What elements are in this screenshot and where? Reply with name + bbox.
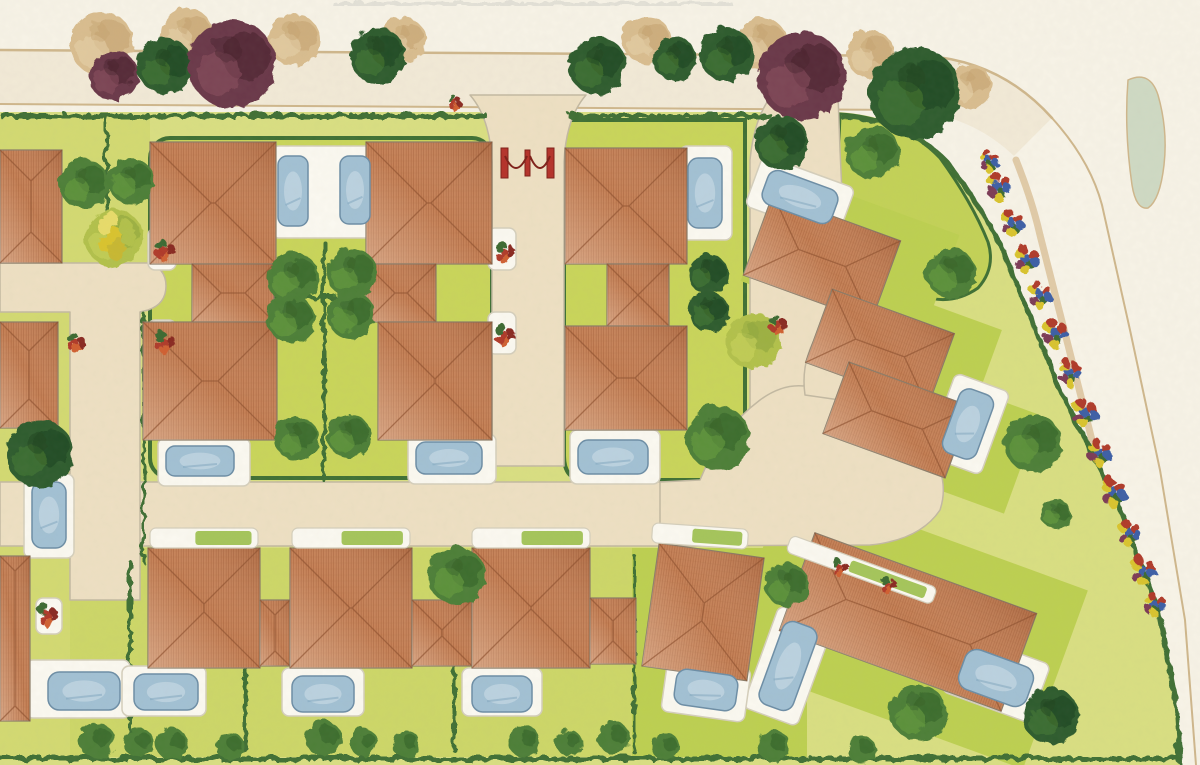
tree-texture [635, 22, 649, 36]
flower [1136, 575, 1146, 585]
flower [166, 247, 174, 255]
shrub [304, 719, 340, 755]
tree-texture [339, 297, 353, 311]
gate-post [501, 148, 508, 178]
shrub [348, 727, 376, 755]
flower [1044, 315, 1054, 325]
shrub [77, 721, 113, 757]
house-edge-2 [0, 322, 58, 428]
flower [100, 209, 115, 224]
tree-dark [1021, 686, 1077, 742]
shrub-shadow [91, 726, 109, 744]
flower [499, 338, 507, 346]
shrub-shadow [225, 734, 239, 748]
tree-texture [279, 301, 293, 315]
flower [988, 169, 998, 179]
shrub-shadow [359, 731, 373, 745]
house-ne-2 [565, 326, 687, 430]
tree-texture [24, 430, 44, 450]
flower [156, 237, 164, 245]
tree-texture [338, 420, 351, 433]
house-sw-2 [378, 322, 492, 440]
flower [1063, 376, 1072, 385]
house-edge-1 [0, 150, 62, 263]
tree-texture [699, 297, 711, 309]
shrub-shadow [564, 732, 577, 745]
tree-texture [281, 259, 297, 275]
tree-texture [782, 45, 808, 71]
flower [881, 574, 887, 580]
tree-mid [325, 246, 375, 296]
flower [1090, 436, 1099, 445]
flower [1156, 601, 1164, 609]
tree-texture [212, 33, 238, 59]
flower [1060, 356, 1069, 365]
tree-dark [686, 252, 726, 292]
tree-mid [1002, 412, 1060, 470]
shrub-shadow [519, 728, 535, 744]
flower [159, 253, 167, 261]
flower [506, 249, 514, 257]
tree-texture [1048, 502, 1057, 511]
flower [1002, 206, 1011, 215]
shrub [122, 726, 152, 756]
tree-mid [924, 246, 974, 296]
shrub [390, 728, 418, 756]
flower [1048, 337, 1058, 347]
flower [76, 339, 83, 346]
flower [1132, 553, 1142, 563]
tree-texture [740, 321, 757, 338]
tree-texture [959, 70, 972, 83]
flower [450, 104, 455, 109]
tree-maroon [87, 49, 137, 99]
tree-texture [750, 25, 766, 41]
flower [43, 619, 51, 627]
flower [1107, 497, 1117, 507]
tree-dark [4, 418, 72, 486]
tree-dark [687, 290, 727, 330]
shrub [846, 734, 874, 762]
site-plan: Residential development masterplan illus… [0, 0, 1200, 765]
flower [1130, 528, 1139, 537]
tree-mid [426, 545, 484, 603]
tree-dark [567, 35, 625, 93]
tree-texture [906, 693, 923, 710]
tree-texture [282, 21, 298, 37]
flower [68, 330, 75, 337]
shrub [649, 730, 677, 758]
swimming-pool [688, 158, 722, 228]
flower [1148, 608, 1156, 616]
tree-texture [584, 45, 601, 62]
tree-tan [266, 12, 318, 64]
flower [119, 229, 134, 244]
flower [156, 329, 164, 337]
gate-post [525, 150, 530, 176]
shrub-shadow [167, 731, 183, 747]
flower [1119, 516, 1128, 525]
swimming-pool [278, 156, 308, 226]
shrub [506, 723, 538, 755]
driveway-entry [292, 528, 410, 548]
gate-post [547, 148, 554, 178]
flower [1013, 218, 1022, 227]
flower [1019, 263, 1029, 273]
tree-mid [265, 293, 313, 341]
site-plan-canvas [0, 0, 1200, 765]
flower [448, 92, 453, 97]
house-south-east [642, 543, 764, 681]
tree-mid [325, 412, 369, 456]
flower [499, 255, 507, 263]
flower [1071, 368, 1080, 377]
tree-mid [889, 683, 945, 739]
flower [1087, 408, 1097, 418]
tree-texture [1019, 422, 1036, 439]
tree-texture [769, 123, 785, 139]
swimming-pool [472, 676, 532, 712]
flower [841, 565, 847, 571]
flower [496, 322, 504, 330]
tree-texture [714, 35, 730, 51]
tree-texture [175, 15, 191, 31]
shrub-shadow [134, 731, 149, 746]
flower [883, 587, 889, 593]
tree-mid [57, 157, 107, 207]
flower [1145, 566, 1155, 576]
shrub-shadow [401, 732, 415, 746]
flower [1030, 278, 1039, 287]
flower [1015, 241, 1025, 251]
swimming-pool [166, 446, 234, 476]
tree-dark [135, 36, 191, 92]
flower [1001, 182, 1011, 192]
flower [506, 332, 514, 340]
flower [1103, 475, 1113, 485]
shrub-shadow [609, 725, 625, 741]
tree-mid [1039, 497, 1069, 527]
swimming-pool [673, 668, 739, 712]
tree-dark [867, 45, 959, 137]
tree-mid [763, 561, 807, 605]
shrub-shadow [318, 724, 336, 742]
flower [833, 557, 839, 563]
tree-texture [72, 166, 87, 181]
flower [496, 239, 504, 247]
flower [105, 242, 120, 257]
flower [1057, 328, 1067, 338]
flower [770, 312, 777, 319]
flower [835, 570, 841, 576]
tree-texture [340, 255, 355, 270]
tree-texture [860, 133, 876, 149]
tree-dark [698, 26, 752, 80]
shrub [756, 728, 788, 760]
tree-maroon [186, 18, 274, 106]
tree-texture [776, 569, 789, 582]
swimming-pool [48, 672, 120, 710]
tree-texture [102, 58, 117, 73]
tree-mid [273, 415, 317, 459]
tree-texture [152, 46, 169, 63]
house-edge-3 [0, 556, 30, 721]
entry-lawn-strip [522, 531, 583, 545]
swimming-pool [32, 482, 66, 548]
flower [1041, 290, 1050, 299]
flower [455, 99, 460, 104]
flower [889, 582, 895, 588]
flower [983, 163, 991, 171]
tree-mid [844, 124, 898, 178]
flower [992, 191, 1002, 201]
tree-dark [348, 26, 404, 82]
tree-texture [365, 36, 382, 53]
swimming-pool [578, 440, 648, 474]
flower [50, 613, 58, 621]
tree-maroon [756, 30, 844, 118]
flower [1093, 456, 1102, 465]
tree-dark [651, 35, 695, 79]
tree-texture [443, 555, 460, 572]
flower [778, 321, 785, 328]
tree-texture [1038, 696, 1055, 713]
shrub [214, 730, 242, 758]
driveway-entry [150, 528, 258, 548]
cropped-caption-remnant [330, 0, 730, 5]
tree-texture [664, 43, 677, 56]
swimming-pool [134, 674, 198, 710]
tree-mid [325, 289, 373, 337]
flower [1101, 448, 1110, 457]
flower [1033, 298, 1042, 307]
shrub-shadow [769, 733, 785, 749]
tree-mid [684, 404, 748, 468]
swimming-pool [340, 156, 370, 224]
entry-lawn-strip [342, 531, 403, 545]
shrub-shadow [660, 734, 674, 748]
tree-texture [703, 415, 722, 434]
tree-texture [698, 259, 710, 271]
tree-texture [120, 164, 134, 178]
flower [1146, 590, 1154, 598]
swimming-pool [416, 442, 482, 474]
flower [1005, 226, 1014, 235]
tree-texture [939, 255, 954, 270]
flower [166, 339, 174, 347]
tree-texture [87, 21, 106, 40]
flower [1122, 536, 1131, 545]
flower [40, 603, 48, 611]
flower [159, 345, 167, 353]
tree-mid [106, 156, 152, 202]
flower [980, 147, 988, 155]
flower [1028, 254, 1038, 264]
entry-lawn-strip [195, 531, 251, 545]
flower [70, 345, 77, 352]
shrub [554, 728, 580, 754]
flower [772, 327, 779, 334]
flower [1074, 395, 1084, 405]
shrub-shadow [857, 738, 871, 752]
swimming-pool [292, 676, 354, 712]
flower [990, 157, 998, 165]
tree-texture [286, 423, 299, 436]
tree-texture [895, 61, 923, 89]
shrub [154, 726, 186, 758]
driveway-entry [472, 528, 590, 548]
tree-texture [858, 36, 872, 50]
shrub [596, 720, 628, 752]
flower [1116, 488, 1126, 498]
flower [1078, 417, 1088, 427]
tree-dark [753, 114, 807, 168]
